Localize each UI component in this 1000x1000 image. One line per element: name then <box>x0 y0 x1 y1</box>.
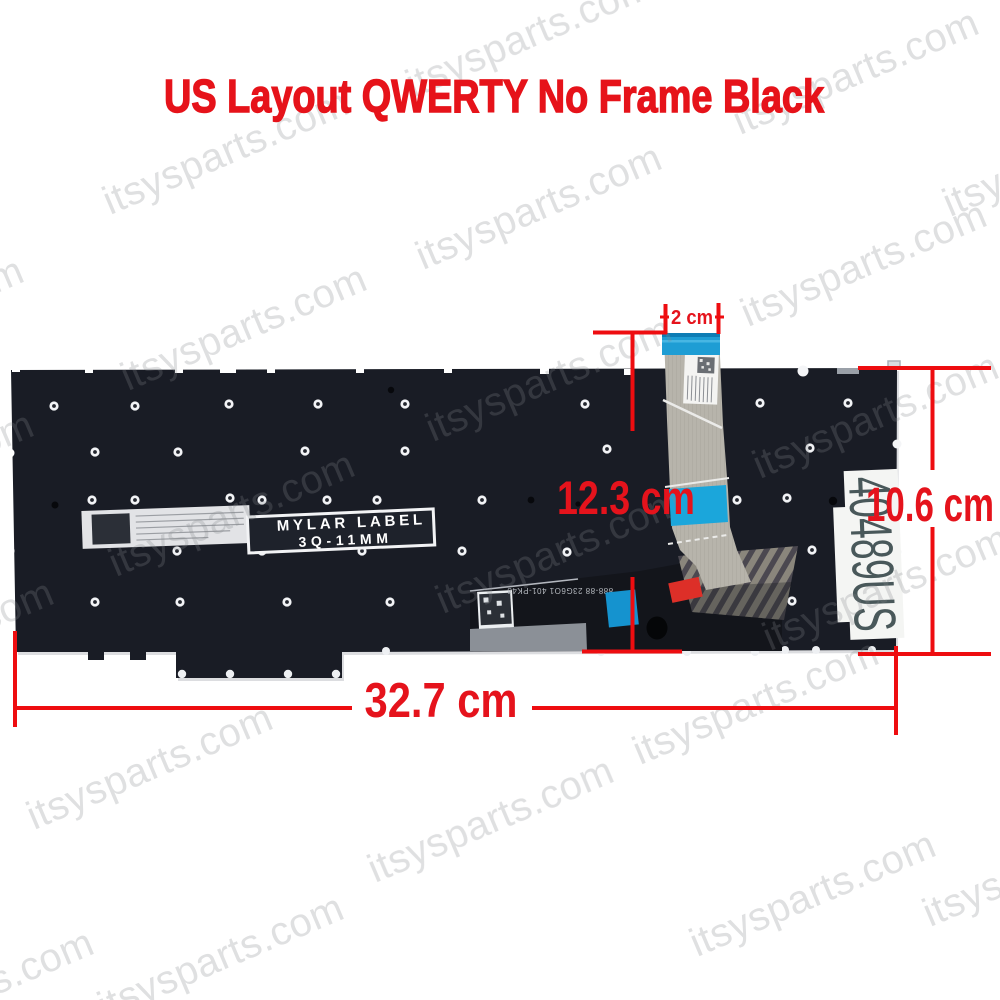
svg-text:US Layout QWERTY No Frame Blac: US Layout QWERTY No Frame Black <box>164 70 824 122</box>
svg-text:12.3 cm: 12.3 cm <box>557 471 695 524</box>
svg-text:32.7 cm: 32.7 cm <box>365 674 518 728</box>
svg-text:10.6 cm: 10.6 cm <box>866 479 994 532</box>
svg-text:2 cm: 2 cm <box>671 307 713 329</box>
